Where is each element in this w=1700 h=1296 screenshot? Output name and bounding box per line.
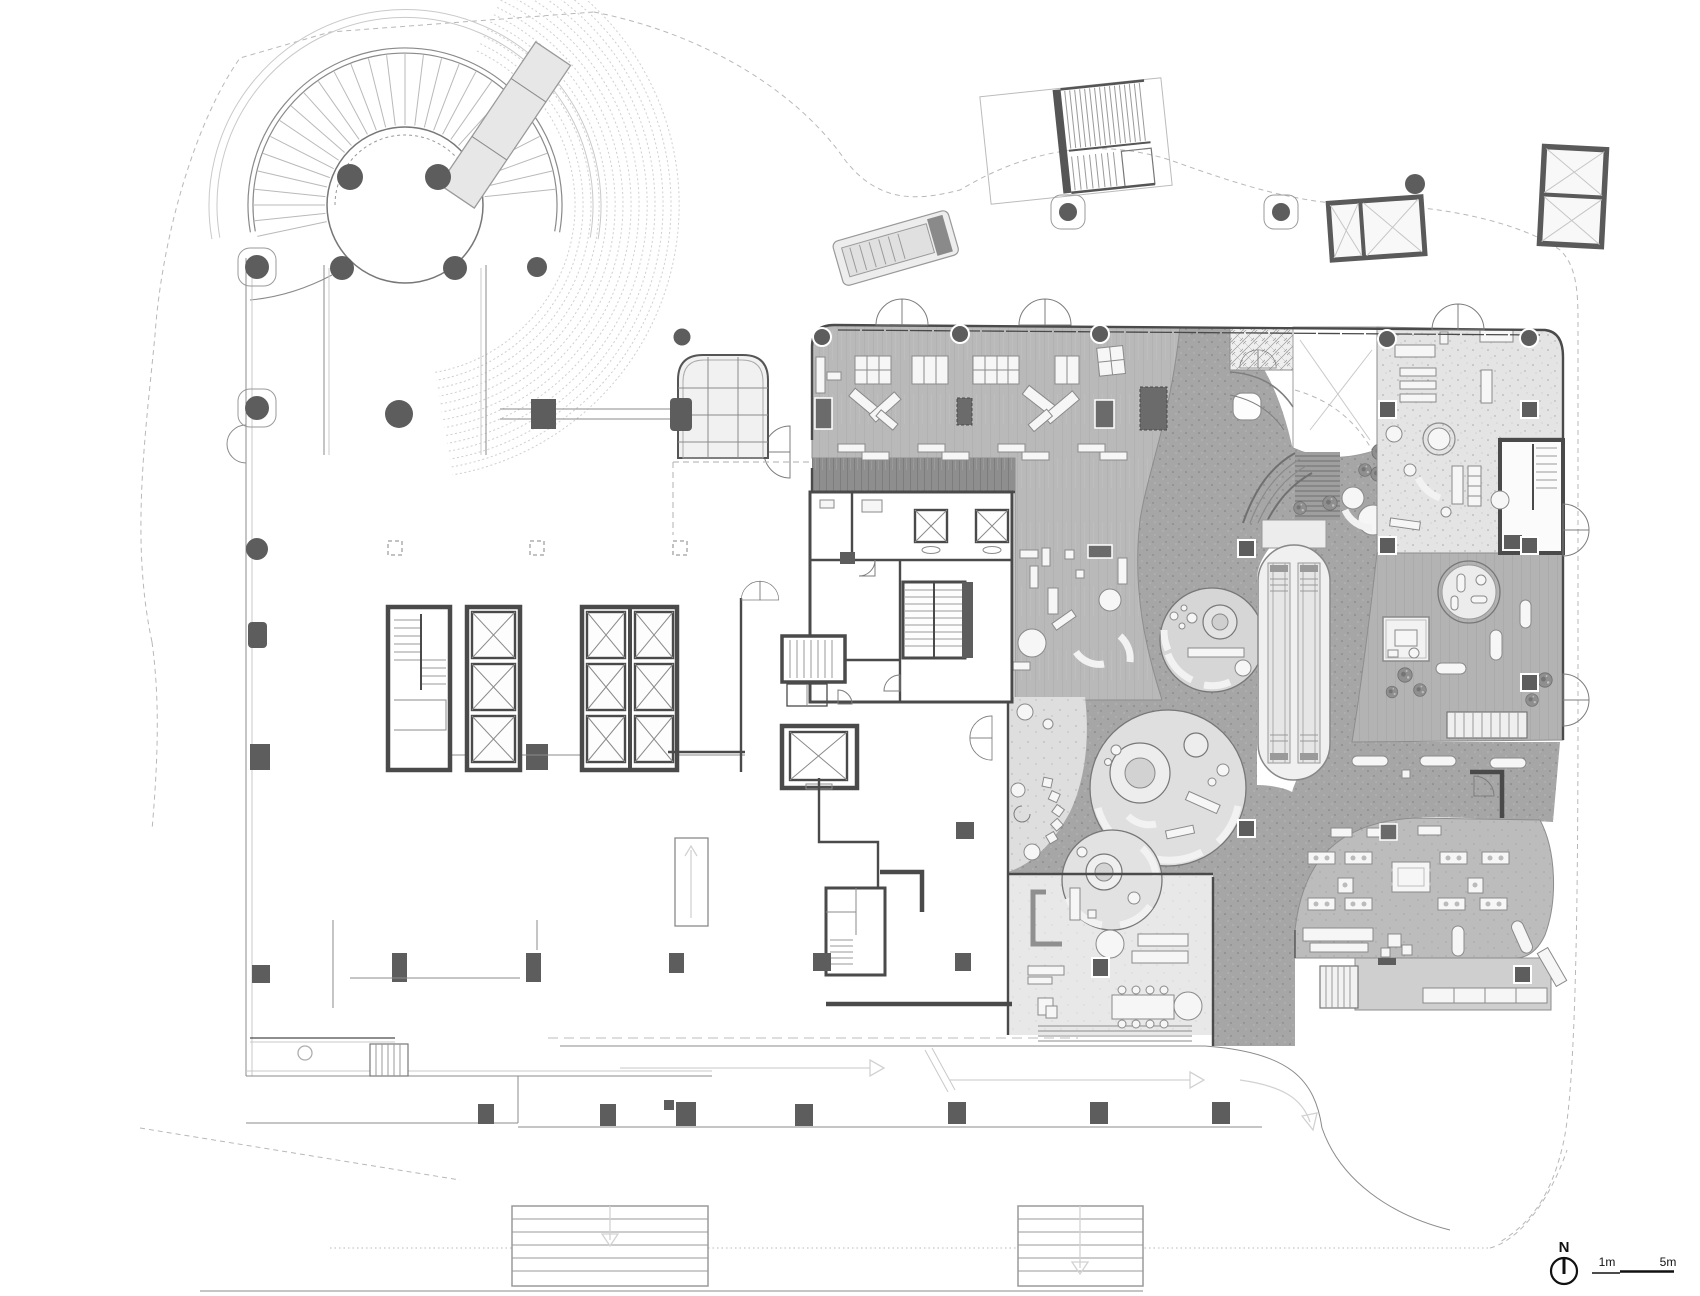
entry-steps-west — [512, 1206, 708, 1286]
service-stair — [782, 636, 845, 682]
lower-left-rooms — [246, 920, 537, 1123]
elevator-bank-a — [467, 607, 520, 770]
stone-hatch-patch — [1230, 328, 1293, 370]
dark-wood-band — [812, 458, 1015, 492]
tunnel-walkway — [832, 209, 960, 286]
elevator-core-stair-west — [388, 607, 450, 770]
entry-steps-east — [1018, 1206, 1143, 1286]
floor-plan-canvas: N 1m 5m — [0, 0, 1700, 1296]
road-columns — [478, 1100, 1230, 1126]
display-table — [973, 356, 1019, 384]
display-table — [1097, 346, 1126, 377]
external-stair — [980, 78, 1172, 204]
north-label: N — [1559, 1239, 1570, 1256]
amphitheater-ramp — [439, 42, 570, 208]
scale-bar: 1m 5m — [1592, 1255, 1676, 1273]
main-stair-retail — [903, 582, 965, 658]
round-seating — [1438, 561, 1500, 623]
compass: N — [1551, 1239, 1577, 1284]
amphitheater — [209, 0, 679, 475]
storage-room — [826, 888, 885, 975]
sofa-se — [1303, 928, 1373, 952]
scale-5m-label: 5m — [1660, 1255, 1677, 1269]
north-arrow-icon — [1551, 1258, 1577, 1284]
rug-area — [1383, 617, 1429, 661]
display-table — [1055, 356, 1079, 384]
annex-stair — [1320, 966, 1358, 1008]
service-ramp — [675, 838, 708, 926]
pavilion-circle-north — [1160, 588, 1264, 692]
cafe-large-table — [1388, 862, 1435, 892]
elevator-bank-b — [582, 607, 677, 770]
wide-stair-east — [1447, 712, 1527, 738]
scale-1m-label: 1m — [1599, 1255, 1616, 1269]
sofa-cluster — [1468, 466, 1481, 506]
skylight-grid-large — [1539, 146, 1606, 246]
escalator-bank — [1258, 520, 1330, 780]
small-stair — [370, 1044, 408, 1076]
road-dropoff — [478, 1046, 1450, 1230]
display-table — [912, 356, 948, 384]
skylight-grid-small — [1328, 197, 1425, 260]
display-table — [855, 356, 891, 384]
